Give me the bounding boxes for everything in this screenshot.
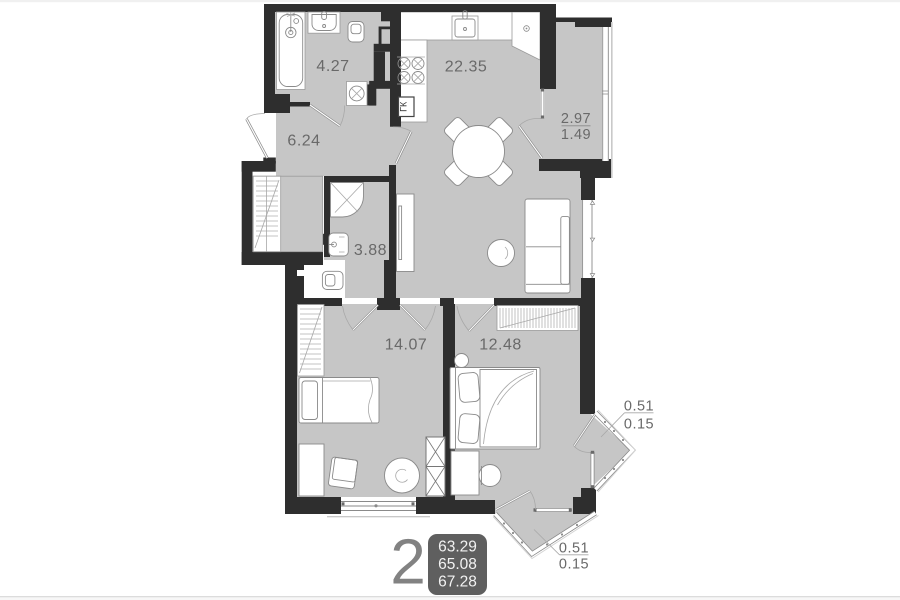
svg-text:0.51: 0.51 (559, 541, 589, 557)
svg-text:0.51: 0.51 (624, 399, 654, 415)
svg-text:4.27: 4.27 (316, 58, 349, 75)
svg-text:3.88: 3.88 (354, 242, 387, 259)
svg-text:2: 2 (390, 526, 426, 598)
svg-text:14.07: 14.07 (385, 337, 428, 354)
svg-text:1.49: 1.49 (561, 127, 591, 143)
svg-text:2.97: 2.97 (561, 111, 591, 127)
svg-text:22.35: 22.35 (445, 59, 488, 76)
svg-text:0.15: 0.15 (559, 557, 589, 573)
svg-text:0.15: 0.15 (624, 417, 654, 433)
svg-text:6.24: 6.24 (287, 133, 320, 150)
svg-text:67.28: 67.28 (438, 574, 477, 591)
svg-text:65.08: 65.08 (438, 556, 477, 573)
svg-text:ГК: ГК (399, 101, 409, 112)
svg-text:12.48: 12.48 (479, 337, 522, 354)
svg-text:63.29: 63.29 (438, 539, 477, 556)
